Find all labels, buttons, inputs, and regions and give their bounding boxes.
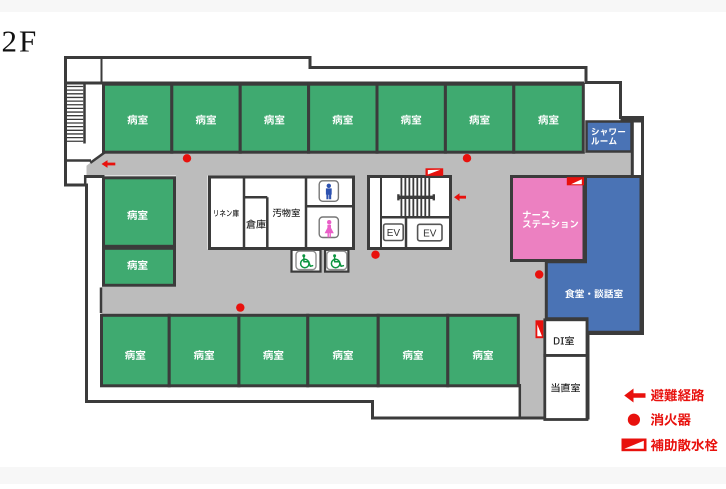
svg-text:EV: EV: [387, 228, 401, 239]
svg-text:EV: EV: [423, 229, 437, 240]
svg-text:2F: 2F: [2, 24, 39, 59]
